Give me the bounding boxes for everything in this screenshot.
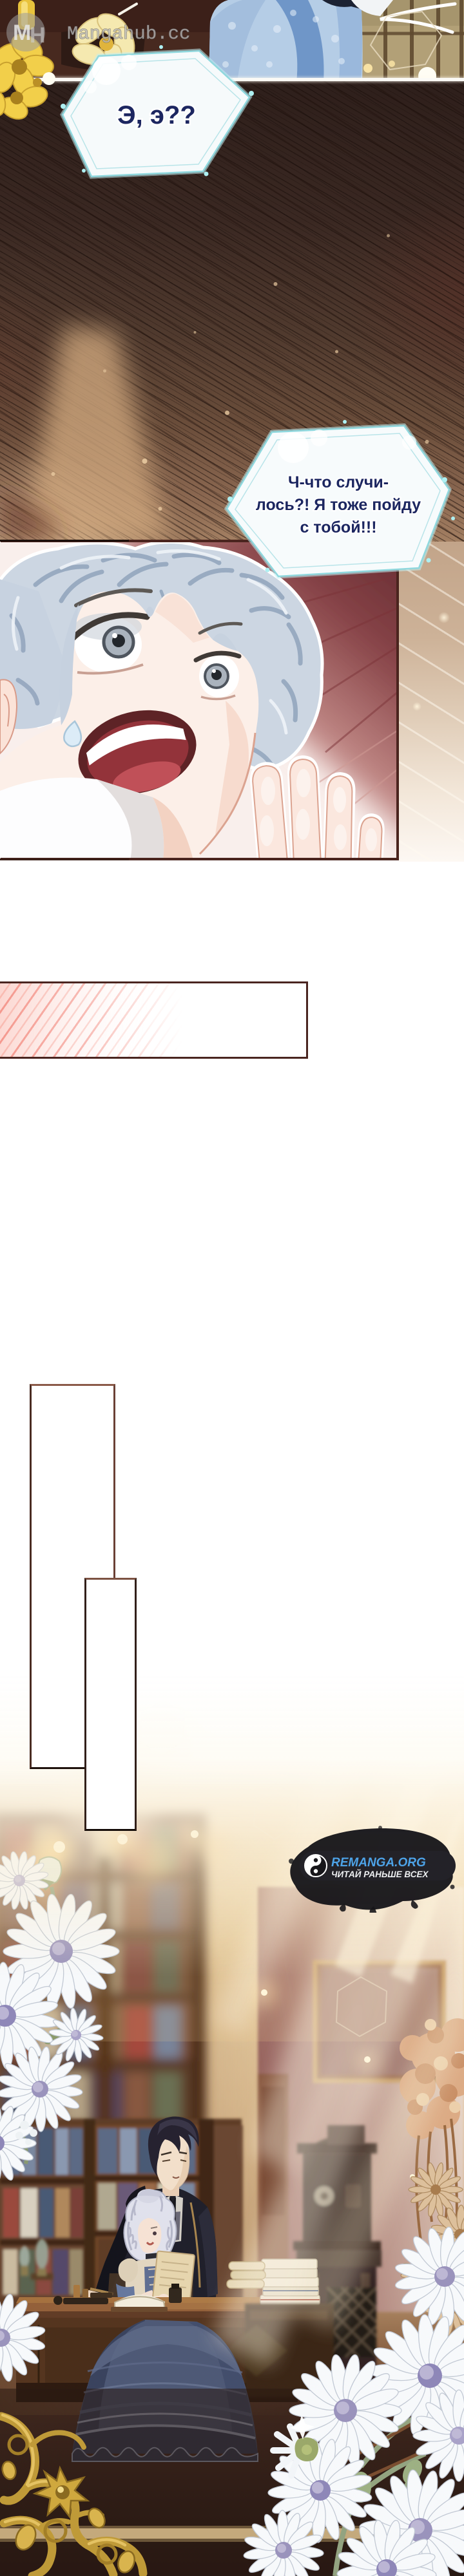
svg-text:Mangahub.cc: Mangahub.cc [67, 23, 190, 44]
svg-text:ЧИТАЙ РАНЬШЕ ВСЕХ: ЧИТАЙ РАНЬШЕ ВСЕХ [331, 1869, 429, 1879]
svg-text:с тобой!!!: с тобой!!! [300, 518, 376, 536]
svg-text:Ч-что случи-: Ч-что случи- [288, 473, 389, 491]
svg-text:H: H [30, 23, 46, 48]
svg-text:M: M [13, 21, 31, 45]
svg-text:REMANGA.ORG: REMANGA.ORG [331, 1856, 426, 1870]
svg-text:лось?! Я тоже пойду: лось?! Я тоже пойду [256, 496, 421, 514]
svg-text:Э, э??: Э, э?? [117, 101, 196, 129]
